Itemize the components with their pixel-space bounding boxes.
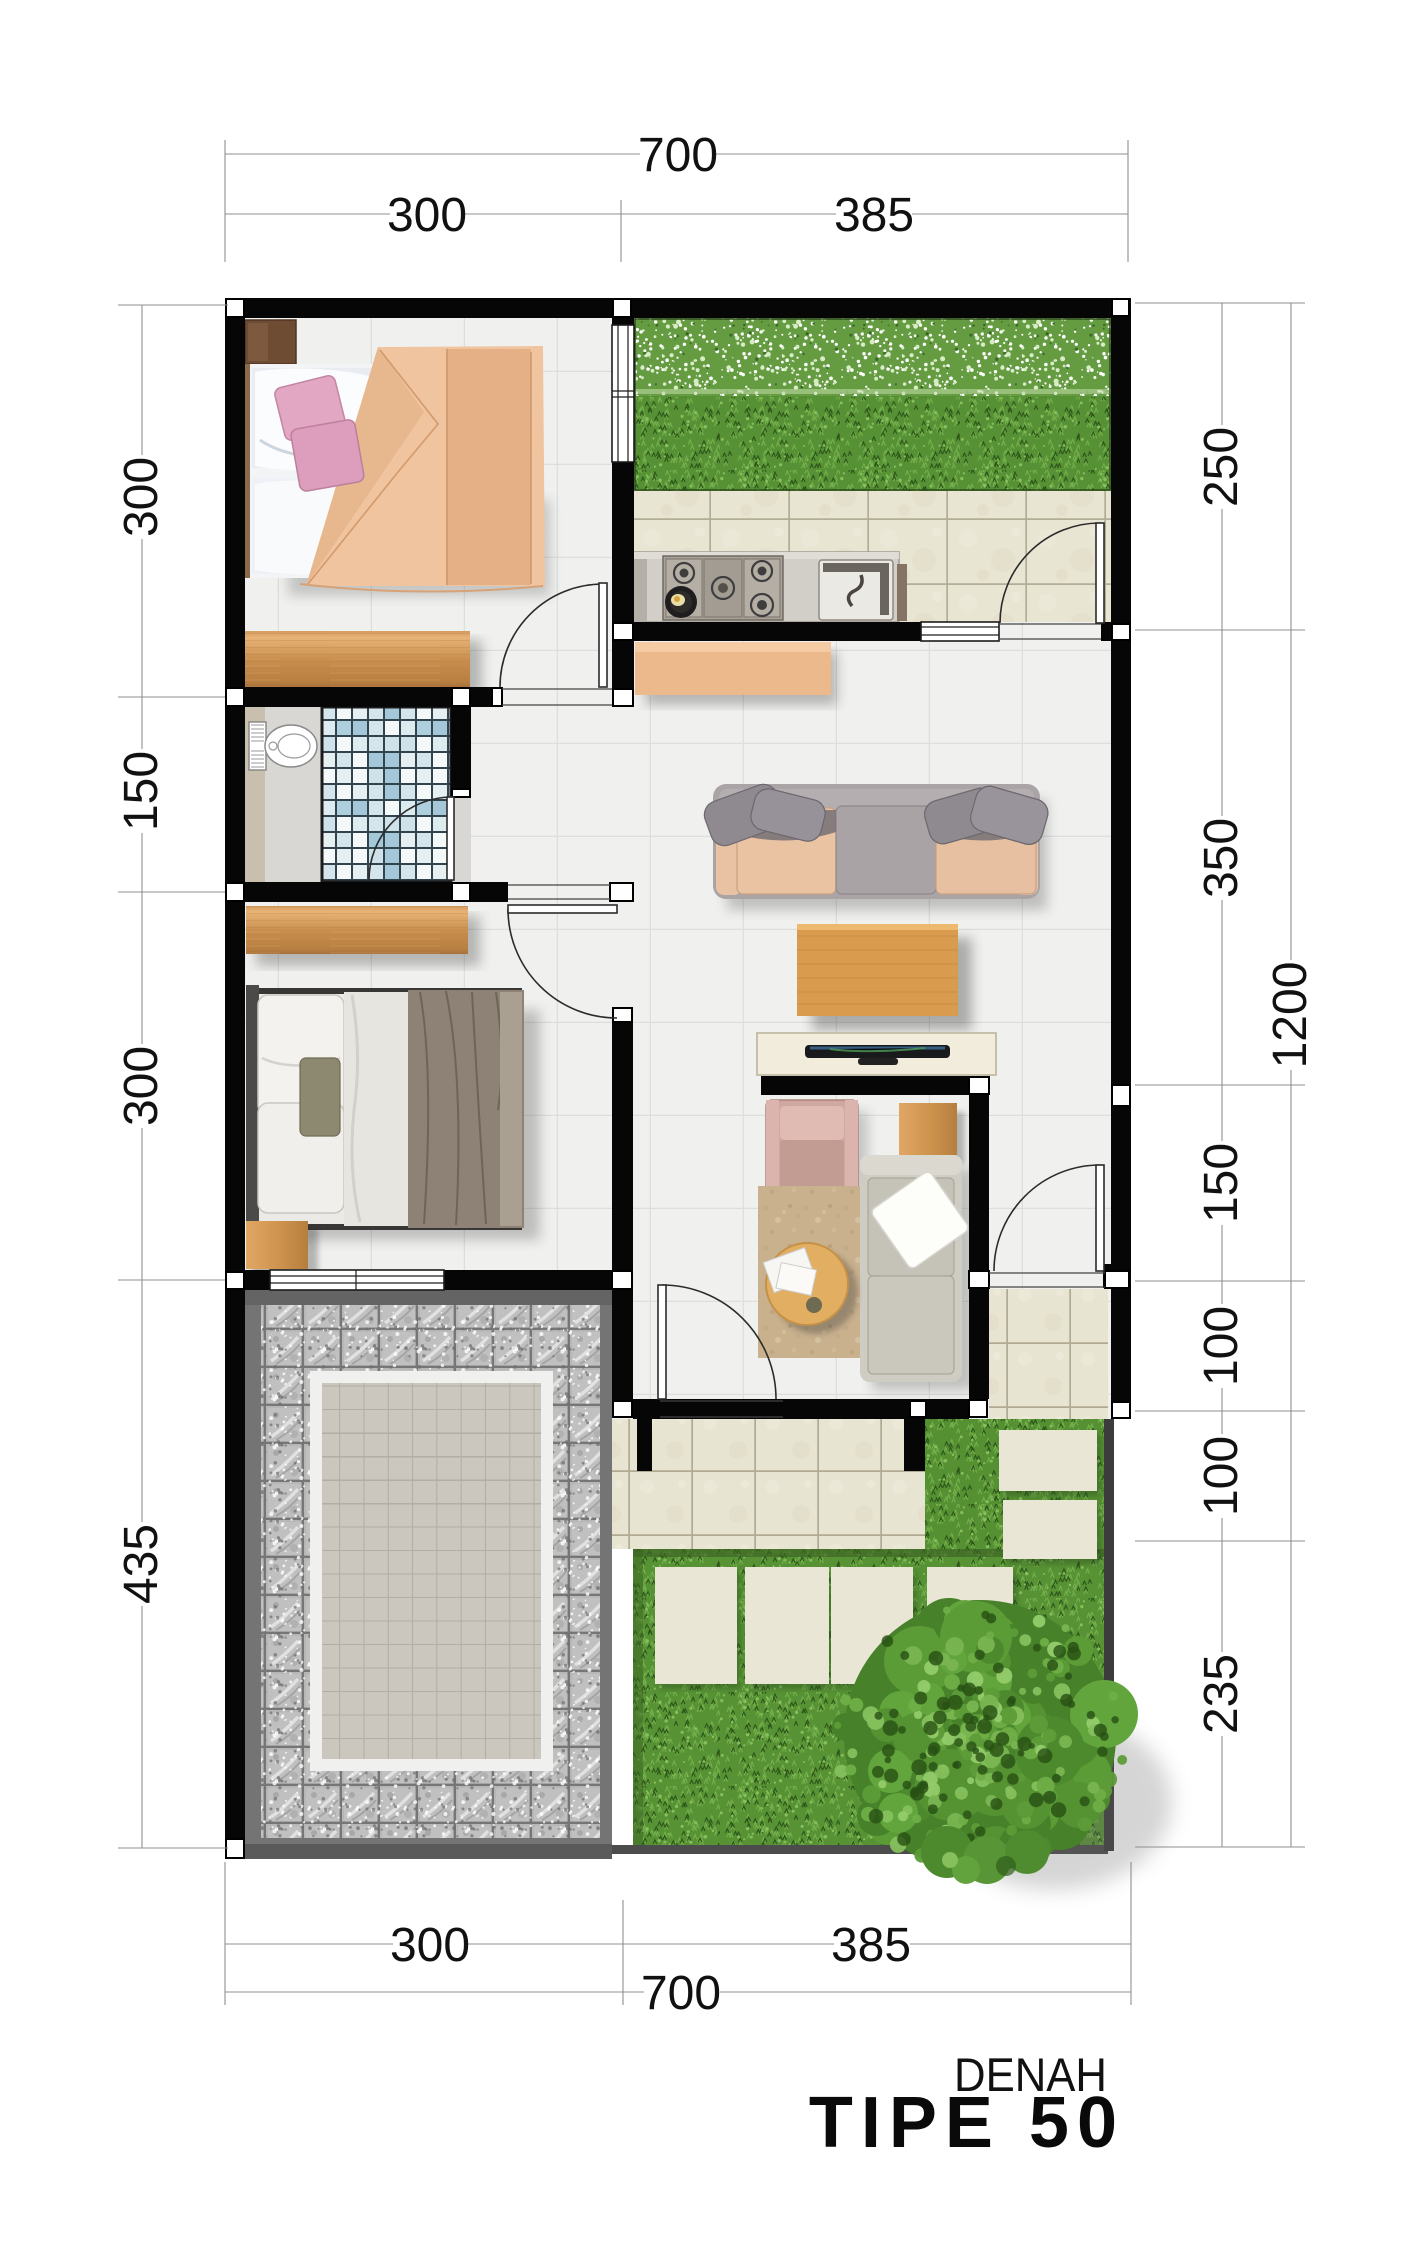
svg-text:150: 150	[1195, 1143, 1248, 1223]
svg-text:300: 300	[387, 189, 467, 242]
svg-text:300: 300	[115, 1046, 168, 1126]
svg-text:100: 100	[1195, 1306, 1248, 1386]
svg-text:385: 385	[831, 1919, 911, 1972]
svg-text:250: 250	[1195, 427, 1248, 507]
svg-text:350: 350	[1195, 818, 1248, 898]
svg-text:385: 385	[834, 189, 914, 242]
svg-text:435: 435	[115, 1524, 168, 1604]
svg-text:300: 300	[115, 457, 168, 537]
svg-text:TIPE 50: TIPE 50	[809, 2083, 1125, 2163]
svg-text:700: 700	[638, 129, 718, 182]
svg-text:700: 700	[641, 1967, 721, 2020]
svg-text:235: 235	[1195, 1654, 1248, 1734]
svg-text:150: 150	[115, 751, 168, 831]
svg-text:1200: 1200	[1264, 962, 1317, 1069]
svg-text:300: 300	[390, 1919, 470, 1972]
svg-text:100: 100	[1195, 1436, 1248, 1516]
